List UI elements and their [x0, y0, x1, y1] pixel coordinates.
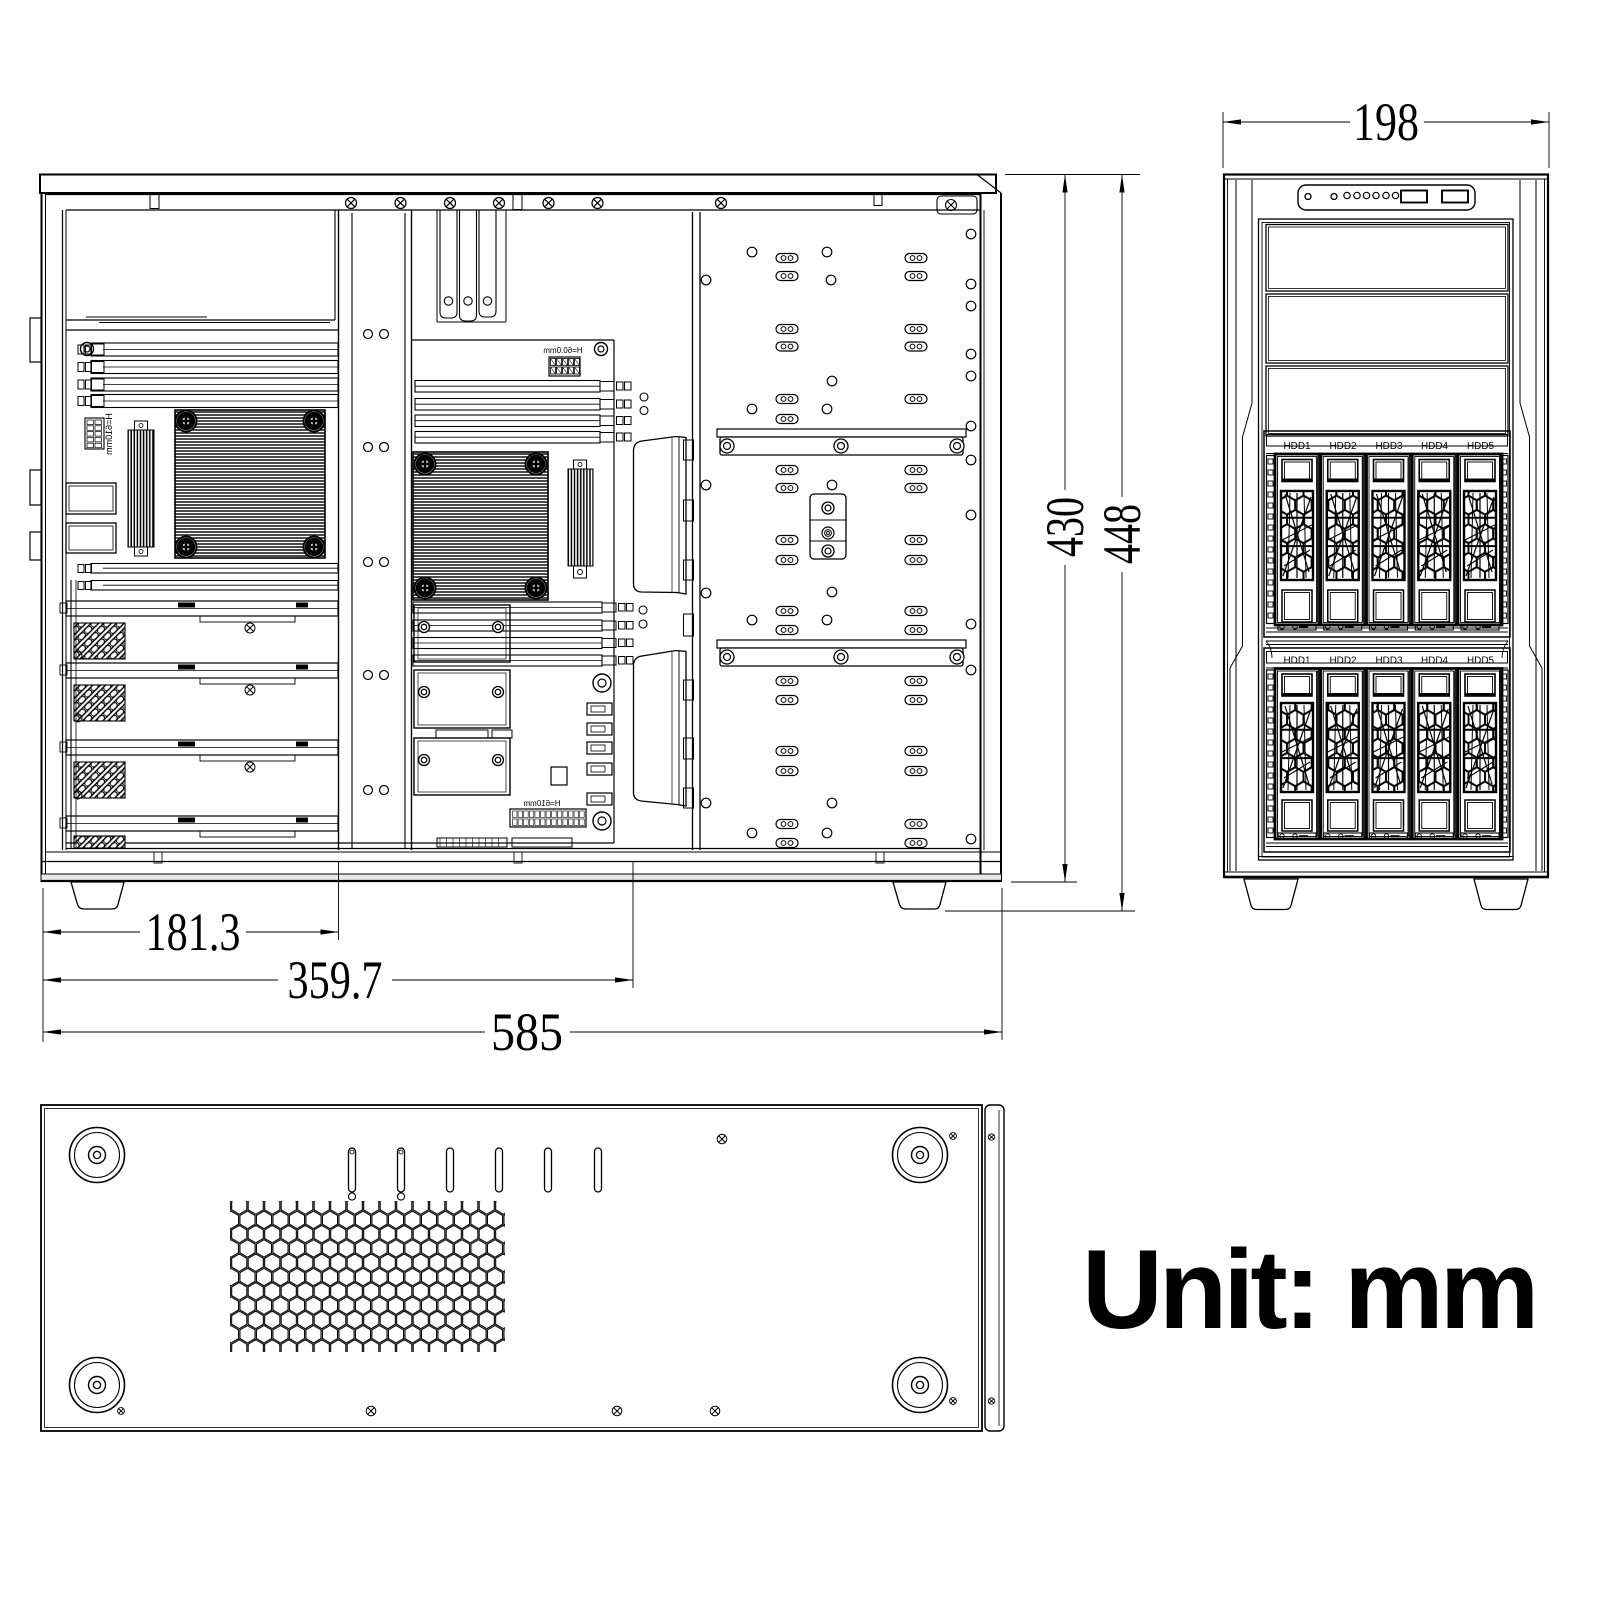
svg-text:HDD3: HDD3: [1376, 656, 1403, 667]
svg-text:H=610mm: H=610mm: [104, 413, 114, 455]
svg-text:HDD3: HDD3: [1376, 441, 1403, 452]
svg-text:448: 448: [1092, 504, 1152, 564]
svg-text:198: 198: [1353, 92, 1419, 152]
svg-text:359.7: 359.7: [288, 950, 383, 1010]
svg-text:Unit: mm: Unit: mm: [1082, 1227, 1535, 1352]
svg-text:430: 430: [1035, 497, 1095, 557]
svg-text:H=60.0mm: H=60.0mm: [543, 346, 583, 355]
svg-text:HDD2: HDD2: [1330, 441, 1357, 452]
svg-text:585: 585: [491, 1002, 563, 1062]
svg-text:HDD5: HDD5: [1467, 441, 1494, 452]
svg-text:HDD2: HDD2: [1330, 656, 1357, 667]
svg-text:H=610mm: H=610mm: [523, 799, 560, 808]
svg-text:HDD5: HDD5: [1467, 656, 1494, 667]
svg-text:HDD4: HDD4: [1421, 656, 1448, 667]
svg-text:HDD4: HDD4: [1421, 441, 1448, 452]
svg-text:HDD1: HDD1: [1284, 656, 1311, 667]
svg-text:HDD1: HDD1: [1284, 441, 1311, 452]
svg-text:181.3: 181.3: [146, 902, 241, 962]
